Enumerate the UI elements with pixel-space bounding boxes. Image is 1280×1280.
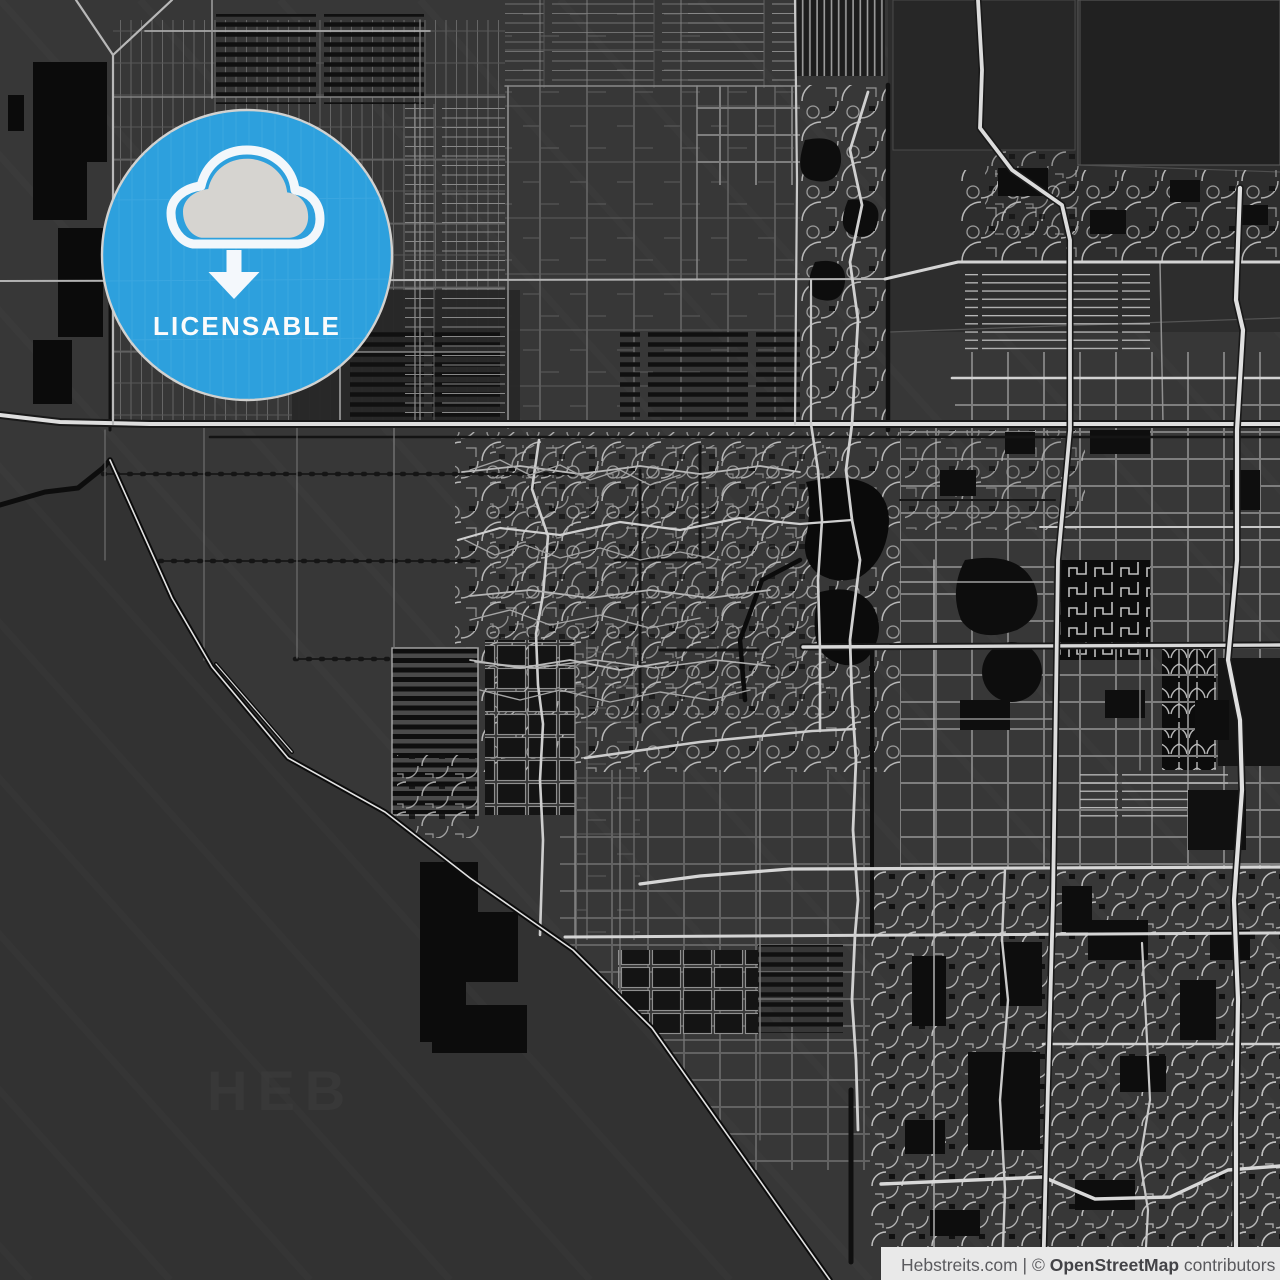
svg-text:HEB: HEB: [207, 1059, 355, 1122]
svg-text:Hebstreits.com | © OpenStreetM: Hebstreits.com | © OpenStreetMap contrib…: [901, 1255, 1276, 1275]
svg-text:LICENSABLE: LICENSABLE: [153, 311, 341, 341]
